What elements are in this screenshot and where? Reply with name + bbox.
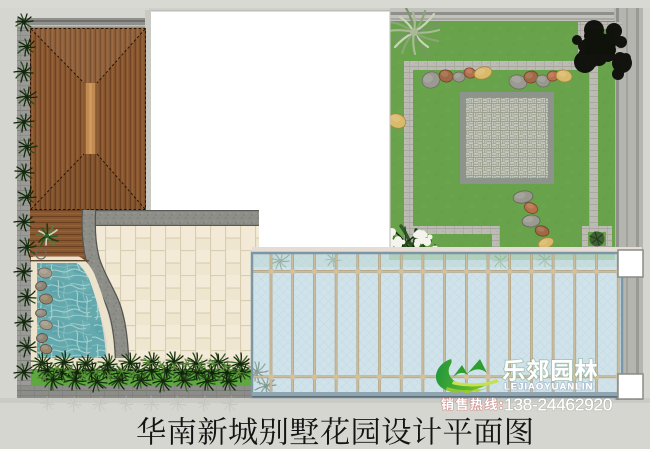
svg-text:LEJIAOYUANLIN: LEJIAOYUANLIN (504, 382, 594, 393)
svg-text:138-24462920: 138-24462920 (504, 395, 613, 415)
